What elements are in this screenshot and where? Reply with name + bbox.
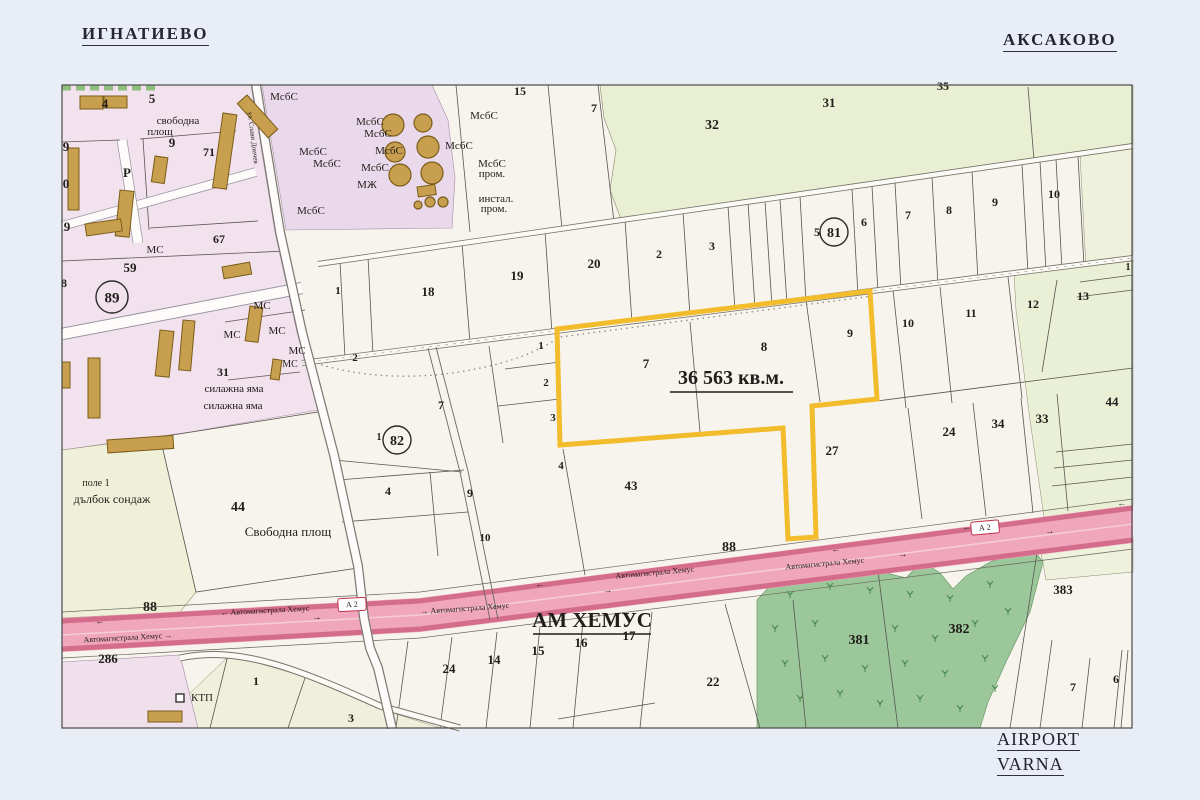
map-label: 9 xyxy=(847,326,853,340)
map-label: 9 xyxy=(169,135,176,150)
map-label: 7 xyxy=(905,208,911,222)
map-label: 24 xyxy=(943,424,957,439)
map-label: 33 xyxy=(1036,411,1050,426)
map-label: 9 xyxy=(63,139,70,154)
map-label: МсбС xyxy=(297,205,325,217)
map-label: МсбС xyxy=(375,145,403,157)
map-label: 17 xyxy=(623,628,637,643)
map-label: 1 xyxy=(377,432,382,443)
map-label: 2 xyxy=(656,247,662,261)
map-label: 89 xyxy=(105,290,120,306)
map-label: 286 xyxy=(98,651,118,666)
map-label: 4 xyxy=(385,484,391,498)
map-label: МС xyxy=(268,325,285,337)
map-label: поле 1 xyxy=(82,478,109,489)
map-label: 20 xyxy=(588,256,601,271)
map-label: 1 xyxy=(335,285,341,297)
map-label: 31 xyxy=(823,95,836,110)
map-label: 1 xyxy=(253,674,259,688)
map-label: МсбС xyxy=(361,162,389,174)
map-label: 9 xyxy=(992,195,998,209)
map-label: МС xyxy=(223,329,240,341)
map-label: 381 xyxy=(849,633,870,648)
map-label: 12 xyxy=(1027,297,1039,311)
airport-line1: AIRPORT xyxy=(997,729,1080,751)
map-label: ← xyxy=(962,522,972,533)
map-label: 82 xyxy=(390,434,404,449)
map-label: 2 xyxy=(352,352,358,364)
map-label: 7 xyxy=(643,356,650,371)
map-label: 7 xyxy=(438,398,444,412)
map-label: 9 xyxy=(467,486,473,500)
map-label: Р xyxy=(123,165,131,180)
map-label: 59 xyxy=(124,260,138,275)
map-label: 7 xyxy=(1070,680,1076,694)
map-label: → xyxy=(1045,526,1055,537)
map-label: 18 xyxy=(422,284,436,299)
map-label: 44 xyxy=(1106,394,1120,409)
map-label: дълбок сондаж xyxy=(74,492,151,506)
map-label: 35 xyxy=(937,79,949,93)
map-label: 71 xyxy=(203,145,215,159)
map-label: 10 xyxy=(480,532,492,544)
map-label: 6 xyxy=(861,215,867,229)
map-label: 44 xyxy=(231,500,245,515)
airport-varna-label: AIRPORT VARNA xyxy=(997,729,1080,779)
map-label: 3 xyxy=(709,239,715,253)
parcel-area-label: 36 563 кв.м. xyxy=(678,367,784,389)
map-label: 13 xyxy=(1077,289,1089,303)
map-label: МсбС xyxy=(364,128,392,140)
map-label: МсбС xyxy=(313,158,341,170)
map-label: 32 xyxy=(705,118,719,133)
map-label: 7 xyxy=(591,101,597,115)
map-label: 4 xyxy=(558,460,564,472)
map-label: 14 xyxy=(488,652,502,667)
highway-badge: А 2 xyxy=(979,523,992,533)
map-label: 383 xyxy=(1053,582,1073,597)
map-label: 19 xyxy=(511,268,525,283)
map-label: 9 xyxy=(64,219,71,234)
map-label: 27 xyxy=(826,443,840,458)
map-label: 15 xyxy=(532,643,546,658)
map-label: 5 xyxy=(814,225,820,239)
map-label: КТП xyxy=(191,692,213,704)
map-label: 10 xyxy=(902,316,914,330)
map-label: 22 xyxy=(707,674,720,689)
map-label: 8 xyxy=(761,339,768,354)
map-label: 10 xyxy=(1048,187,1060,201)
map-label: 16 xyxy=(575,635,589,650)
map-label: 6 xyxy=(1113,672,1119,686)
map-label: ← xyxy=(535,579,545,590)
map-label: силажна яма xyxy=(203,400,262,412)
cadastral-map: 45свободнаплощ997109РМС6759889МСМСМСМСМС… xyxy=(0,0,1200,800)
map-label: 1 xyxy=(538,340,544,352)
map-label: МсбС xyxy=(445,140,473,152)
highway-badge: А 2 xyxy=(346,600,358,610)
map-label: пром. xyxy=(479,168,506,180)
map-label: 2 xyxy=(543,377,549,389)
map-label: → xyxy=(898,549,908,560)
map-label: МС xyxy=(146,244,163,256)
map-label: 88 xyxy=(143,600,157,615)
map-label: 0 xyxy=(63,176,70,191)
map-label: МсбС xyxy=(470,110,498,122)
map-label: МС xyxy=(253,300,270,312)
map-label: 43 xyxy=(625,478,639,493)
map-label: 3 xyxy=(348,711,354,725)
map-label: 24 xyxy=(443,661,457,676)
map-label: МсбС xyxy=(270,91,298,103)
map-label: 5 xyxy=(149,91,156,106)
map-label: 34 xyxy=(992,416,1006,431)
map-label: 4 xyxy=(102,96,109,111)
map-label: МС xyxy=(288,345,305,357)
map-label: 11 xyxy=(965,306,976,320)
ktp-substation-icon xyxy=(176,694,184,702)
map-page: ИГНАТИЕВО АКСАКОВО xyxy=(0,0,1200,800)
map-label: ← xyxy=(95,616,105,626)
map-label: МЖ xyxy=(357,179,377,191)
map-label: Свободна площ xyxy=(245,524,332,539)
map-label: 15 xyxy=(514,84,526,98)
airport-line2: VARNA xyxy=(997,754,1064,776)
map-label: пром. xyxy=(481,203,508,215)
map-label: ← xyxy=(1117,498,1127,509)
map-label: → xyxy=(603,585,613,596)
map-label: 8 xyxy=(946,203,952,217)
map-label: 67 xyxy=(213,232,225,246)
map-label: → xyxy=(312,612,322,622)
map-label: МсбС xyxy=(356,116,384,128)
map-label: 1 xyxy=(1126,262,1131,273)
map-label: МсбС xyxy=(299,146,327,158)
map-label: ← xyxy=(831,544,841,555)
map-label: 88 xyxy=(722,540,736,555)
map-label: 31 xyxy=(217,365,229,379)
map-label: 382 xyxy=(949,622,970,637)
map-label: МС xyxy=(282,359,298,370)
map-label: 3 xyxy=(550,412,556,424)
map-label: 81 xyxy=(827,226,841,241)
map-label: силажна яма xyxy=(204,383,263,395)
